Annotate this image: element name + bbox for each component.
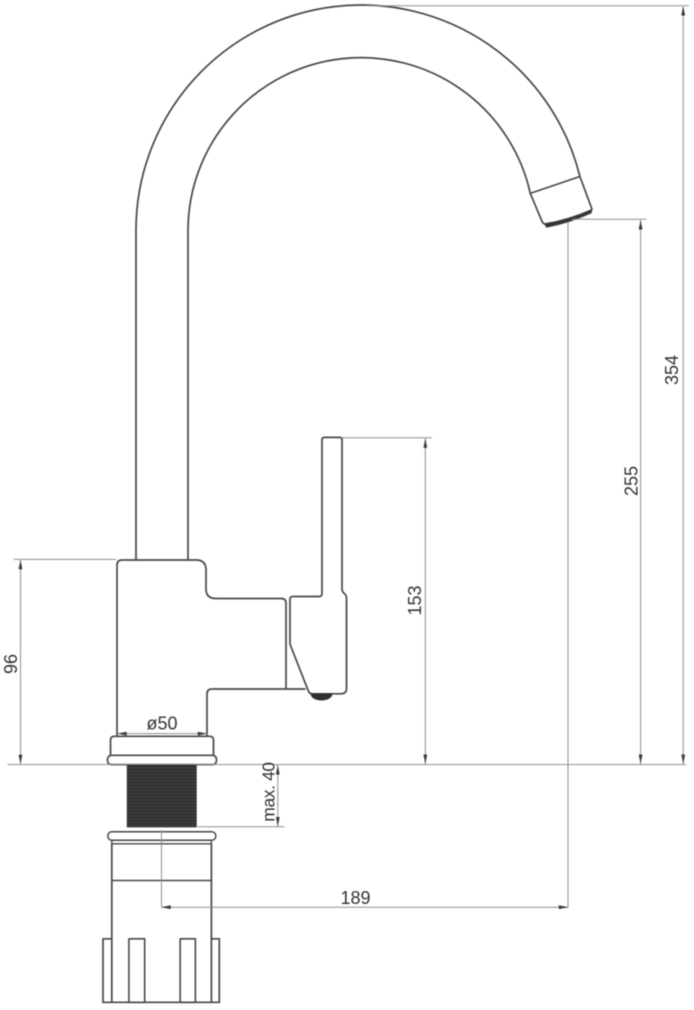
svg-text:96: 96 bbox=[1, 654, 21, 674]
svg-text:max. 40: max. 40 bbox=[259, 762, 279, 822]
svg-text:354: 354 bbox=[662, 355, 682, 385]
svg-text:ø50: ø50 bbox=[146, 713, 177, 733]
svg-text:153: 153 bbox=[405, 585, 425, 615]
svg-text:255: 255 bbox=[622, 466, 642, 496]
svg-text:189: 189 bbox=[340, 888, 370, 908]
